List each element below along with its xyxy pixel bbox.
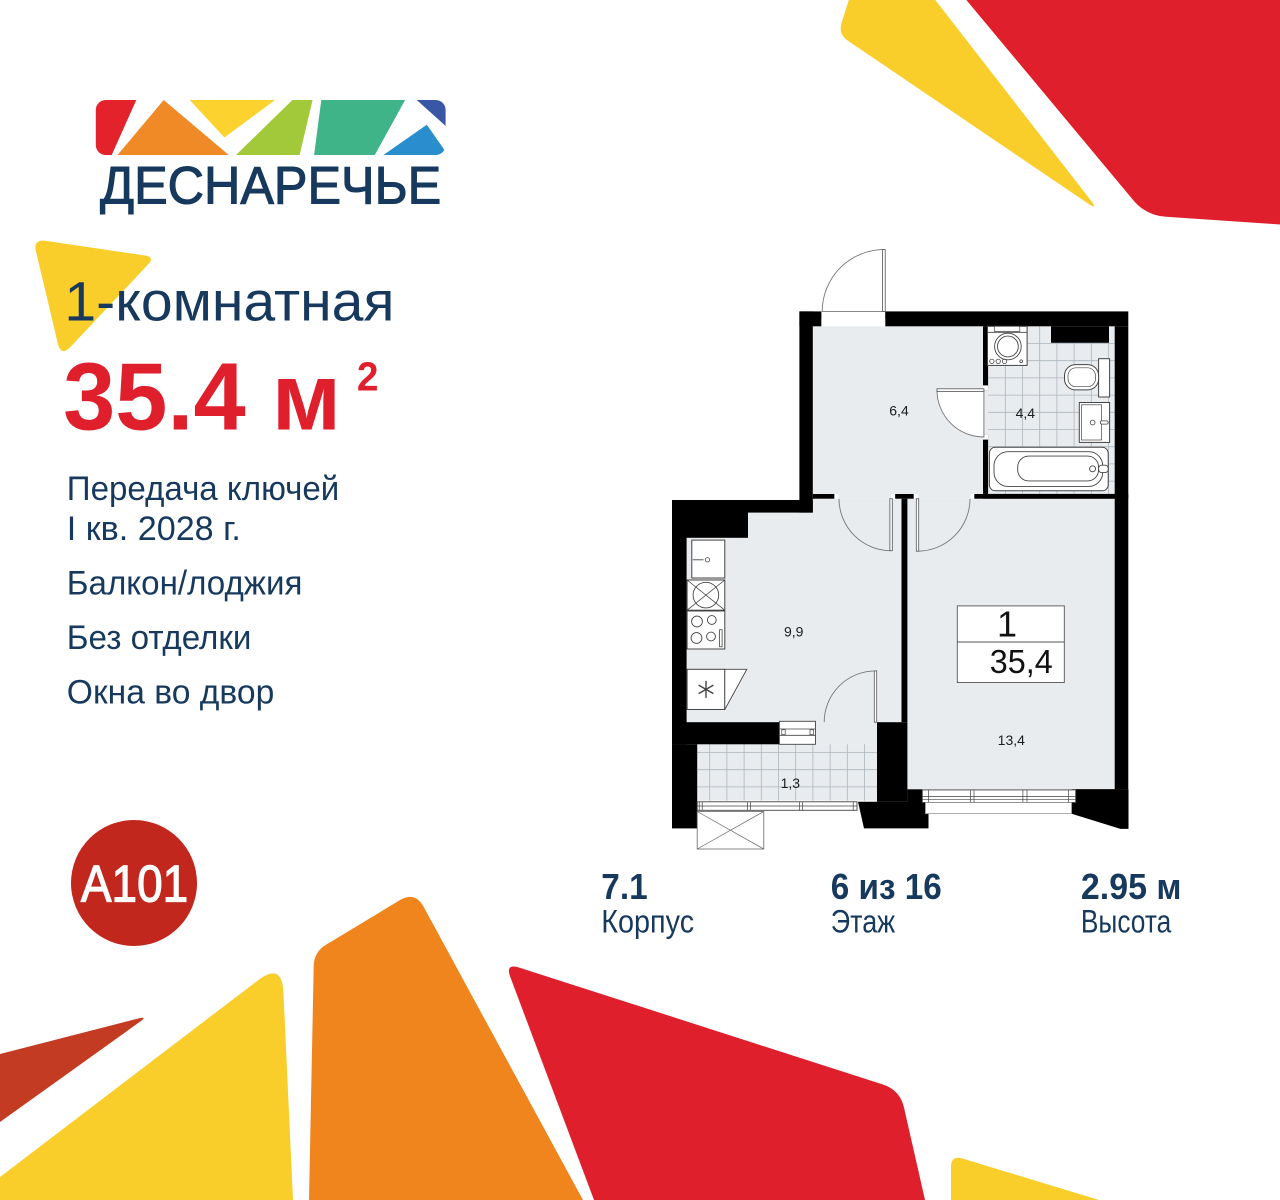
svg-text:Балкон/лоджия: Балкон/лоджия <box>67 565 303 603</box>
svg-text:4,4: 4,4 <box>1016 405 1036 421</box>
svg-text:6 из 16: 6 из 16 <box>831 866 942 907</box>
svg-text:2.95 м: 2.95 м <box>1081 866 1182 907</box>
svg-text:Передача ключей: Передача ключей <box>67 470 340 508</box>
svg-text:7.1: 7.1 <box>601 866 647 907</box>
svg-text:ДЕСНАРЕЧЬЕ: ДЕСНАРЕЧЬЕ <box>100 157 441 216</box>
svg-text:35.4 м: 35.4 м <box>63 343 341 450</box>
svg-text:9,9: 9,9 <box>784 624 804 640</box>
svg-text:Окна во двор: Окна во двор <box>67 674 274 712</box>
svg-text:1: 1 <box>997 604 1017 645</box>
svg-text:Корпус: Корпус <box>601 904 694 940</box>
svg-text:35,4: 35,4 <box>990 643 1053 680</box>
svg-text:1,3: 1,3 <box>781 775 801 791</box>
svg-text:A101: A101 <box>81 856 188 914</box>
svg-text:Высота: Высота <box>1081 904 1172 940</box>
svg-text:2: 2 <box>357 353 379 399</box>
svg-text:Без отделки: Без отделки <box>67 619 252 657</box>
svg-text:1-комнатная: 1-комнатная <box>64 270 394 332</box>
svg-text:13,4: 13,4 <box>998 732 1025 748</box>
svg-text:Этаж: Этаж <box>831 904 896 940</box>
svg-text:6,4: 6,4 <box>889 403 909 419</box>
svg-text:I кв. 2028 г.: I кв. 2028 г. <box>67 510 241 548</box>
